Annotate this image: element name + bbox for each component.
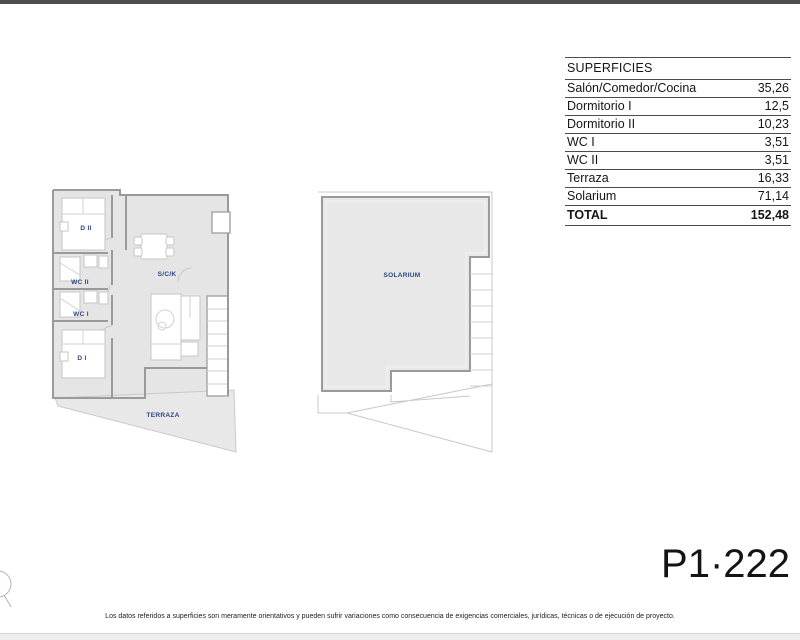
- solarium-fill: [322, 197, 489, 391]
- row-value: 71,14: [758, 188, 789, 205]
- lower-terrace-outline: [318, 384, 492, 452]
- row-label: WC II: [567, 152, 598, 169]
- bed-d1: [60, 330, 105, 378]
- row-value: 35,26: [758, 80, 789, 97]
- bed-d2: [60, 198, 105, 250]
- table-total-row: TOTAL 152,48: [565, 206, 791, 226]
- row-label: Dormitorio II: [567, 116, 635, 133]
- table-row: WC II 3,51: [565, 152, 791, 170]
- table-row: Terraza 16,33: [565, 170, 791, 188]
- room-label-d2: D II: [80, 225, 91, 232]
- unit-code: P1·222: [661, 542, 790, 587]
- room-label-terraza: TERRAZA: [146, 412, 179, 419]
- solarium-stair-treads: [470, 274, 492, 386]
- table-row: Solarium 71,14: [565, 188, 791, 206]
- room-label-wc1: WC I: [73, 311, 89, 318]
- apartment-floor-plan: D II WC II WC I D I S/C/K TERRAZA: [53, 190, 236, 452]
- row-label: Solarium: [567, 188, 616, 205]
- total-value: 152,48: [751, 206, 789, 225]
- footer-strip: [0, 633, 800, 640]
- table-header-row: SUPERFICIES: [565, 58, 791, 80]
- row-value: 10,23: [758, 116, 789, 133]
- room-label-d1: D I: [77, 355, 86, 362]
- row-value: 3,51: [765, 152, 789, 169]
- solarium-plan: SOLARIUM: [318, 192, 492, 452]
- row-label: Terraza: [567, 170, 609, 187]
- table-header-label: SUPERFICIES: [567, 61, 653, 75]
- room-label-wc2: WC II: [71, 279, 89, 286]
- row-value: 12,5: [765, 98, 789, 115]
- living-block: [151, 294, 200, 360]
- row-value: 16,33: [758, 170, 789, 187]
- balcony-notch: [212, 212, 230, 233]
- room-label-solarium: SOLARIUM: [383, 272, 420, 279]
- terraza-wedge: [55, 390, 236, 452]
- disclaimer-text: Los datos referidos a superficies son me…: [0, 613, 780, 620]
- compass-partial-icon: [0, 571, 11, 607]
- row-label: Salón/Comedor/Cocina: [567, 80, 696, 97]
- superficies-table: SUPERFICIES Salón/Comedor/Cocina 35,26 D…: [565, 57, 791, 226]
- table-row: Salón/Comedor/Cocina 35,26: [565, 80, 791, 98]
- row-label: WC I: [567, 134, 595, 151]
- row-value: 3,51: [765, 134, 789, 151]
- table-row: Dormitorio I 12,5: [565, 98, 791, 116]
- table-row: Dormitorio II 10,23: [565, 116, 791, 134]
- table-row: WC I 3,51: [565, 134, 791, 152]
- total-label: TOTAL: [567, 206, 608, 225]
- row-label: Dormitorio I: [567, 98, 632, 115]
- room-label-sck: S/C/K: [158, 271, 177, 278]
